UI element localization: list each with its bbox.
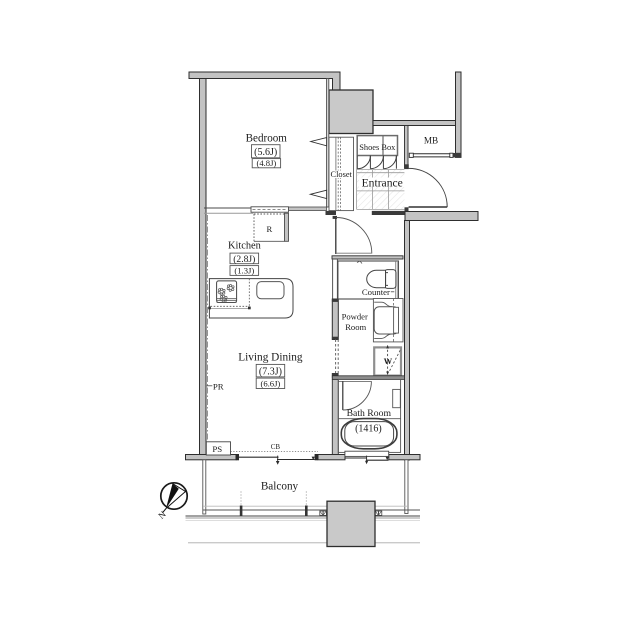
svg-text:CB: CB <box>271 443 281 451</box>
svg-text:(1416): (1416) <box>355 424 382 435</box>
svg-text:(6.6J): (6.6J) <box>260 379 280 389</box>
svg-text:(2.8J): (2.8J) <box>233 254 255 265</box>
svg-text:Balcony: Balcony <box>261 480 299 492</box>
svg-text:(5.6J): (5.6J) <box>254 147 277 158</box>
svg-text:Room: Room <box>345 322 366 332</box>
svg-text:Counter: Counter <box>362 287 390 297</box>
svg-text:W: W <box>384 356 393 366</box>
svg-text:Closet: Closet <box>330 170 352 179</box>
svg-text:PS: PS <box>212 444 222 454</box>
svg-text:Living Dining: Living Dining <box>238 351 303 363</box>
svg-text:PR: PR <box>213 381 224 391</box>
svg-text:(7.3J): (7.3J) <box>259 367 282 378</box>
svg-text:Entrance: Entrance <box>362 176 403 189</box>
svg-text:Powder: Powder <box>342 311 368 321</box>
svg-text:Kitchen: Kitchen <box>228 240 262 251</box>
svg-text:(1.3J): (1.3J) <box>234 266 254 276</box>
svg-text:Bedroom: Bedroom <box>246 133 288 145</box>
svg-text:Bath Room: Bath Room <box>347 408 392 419</box>
svg-text:Shoes Box: Shoes Box <box>359 143 396 152</box>
svg-text:R: R <box>267 224 273 234</box>
svg-text:MB: MB <box>424 136 438 146</box>
svg-text:(4.8J): (4.8J) <box>256 158 276 168</box>
